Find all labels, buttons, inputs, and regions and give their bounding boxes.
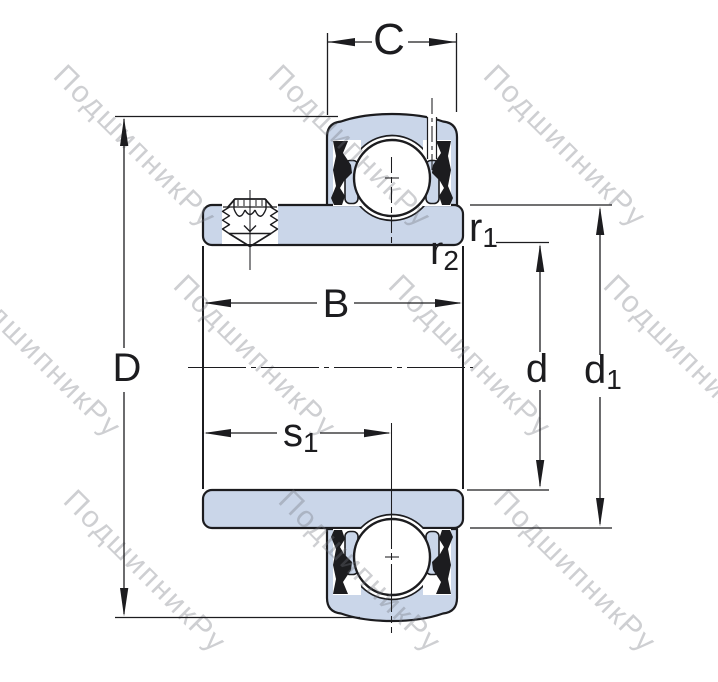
watermark-text: ПодшипникРу [0,269,128,445]
dimension-d1-arrow-bottom [596,498,604,527]
dimension-C-arrow-right [429,38,456,46]
dimension-D-arrow-bottom [120,588,128,617]
dimension-s1-arrow-left [204,429,231,437]
dim-label-D: D [113,346,142,390]
dimension-d-arrow-top [536,244,544,272]
dimension-r1: r1 [469,206,498,253]
watermark-text: ПодшипникРу [47,59,223,235]
dimension-C: C [328,15,457,115]
dim-label-r1: r1 [469,206,498,253]
dimension-d1-arrow-top [596,207,604,236]
dimension-C-arrow-left [328,38,355,46]
bearing-drawing-page: ПодшипникРу ПодшипникРу ПодшипникРу Подш… [0,0,718,682]
dim-label-B: B [323,282,350,326]
watermark-text: ПодшипникРу [597,269,718,445]
dimension-d-arrow-bottom [536,460,544,488]
dim-label-d: d [526,347,548,391]
watermark-text: ПодшипникРу [167,269,343,445]
bearing-cross-section-drawing: ПодшипникРу ПодшипникРу ПодшипникРу Подш… [0,0,718,682]
watermark-layer: ПодшипникРу ПодшипникРу ПодшипникРу Подш… [0,59,718,660]
dimension-s1-arrow-right [364,429,391,437]
watermark-text: ПодшипникРу [487,484,663,660]
dimension-s1: s1 [204,411,391,458]
dim-label-d1: d1 [584,348,622,395]
dim-label-C: C [373,15,405,64]
watermark-text: ПодшипникРу [477,59,653,235]
dimension-B-arrow-right [435,299,462,307]
